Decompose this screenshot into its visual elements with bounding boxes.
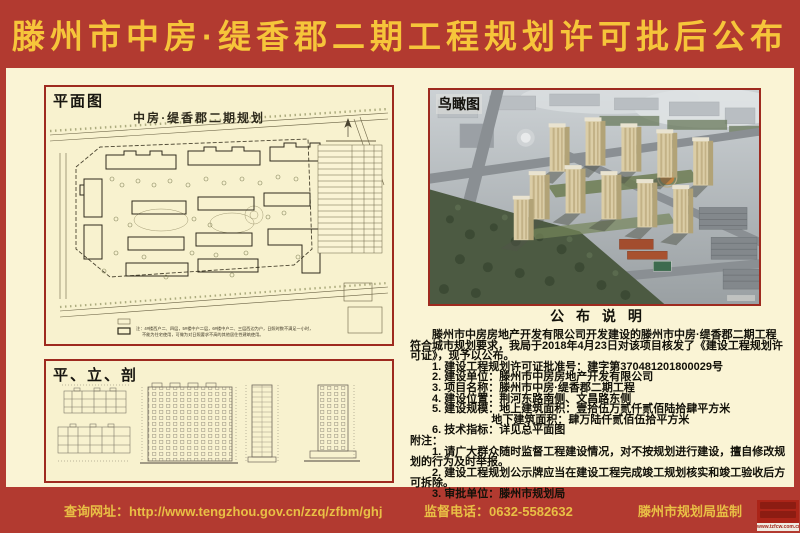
announcement-intro: 滕州市中房房地产开发有限公司开发建设的滕州市中房·缇香郡二期工程符合城市规划要求…: [410, 330, 786, 362]
watermark-glyph-row: [760, 502, 796, 509]
footer-bar: 查询网址：http://www.tengzhou.gov.cn/zzq/zfbm…: [0, 487, 800, 533]
aerial-view-label: 鸟瞰图: [436, 94, 482, 114]
content-area: 平面图 中房·缇香郡二期规划: [6, 68, 794, 487]
announcement-item-3: 3. 项目名称：滕州市中房·缇香郡二期工程: [410, 383, 786, 394]
announcement-note-1: 1. 请广大群众随时监督工程建设情况，对不按规划进行建设，擅自修改规划的行为及时…: [410, 447, 786, 468]
page-title: 滕州市中房·缇香郡二期工程规划许可批后公布: [12, 10, 788, 58]
announcement-note-2: 2. 建设工程规划公示牌应当在建设工程完成竣工规划核实和竣工验收后方可拆除。: [410, 468, 786, 489]
title-banner: 滕州市中房·缇香郡二期工程规划许可批后公布: [0, 0, 800, 68]
aerial-view-image: [430, 90, 759, 304]
announcement-notes-label: 附注：: [410, 436, 786, 447]
site-plan-note-line1: 注：4#楼西户二、四层，5#楼中户二层，6#楼中户二、三层西边为户，日照时数不满…: [136, 325, 313, 332]
footer-producer: 滕州市规划局监制: [638, 501, 742, 520]
announcement-section: 公 布 说 明 滕州市中房房地产开发有限公司开发建设的滕州市中房·缇香郡二期工程…: [410, 306, 786, 500]
watermark-logo: www.tzfcw.com.cn: [757, 500, 799, 531]
footer-website: 查询网址：http://www.tengzhou.gov.cn/zzq/zfbm…: [64, 501, 382, 520]
site-plan-note-line2: 不能为住宅使用，可做为对日照要求不高的其他居住性建筑使用。: [142, 331, 263, 338]
announcement-heading: 公 布 说 明: [410, 306, 786, 326]
footer-phone: 监督电话：0632-5582632: [424, 501, 573, 520]
announcement-poster: 滕州市中房·缇香郡二期工程规划许可批后公布 平面图 中房·缇香郡二期规划: [0, 0, 800, 533]
plan-elevation-section-panel: 平、立、剖: [44, 359, 394, 483]
site-plan-drawing-title: 中房·缇香郡二期规划: [46, 109, 352, 126]
aerial-view-panel: 鸟瞰图: [428, 88, 761, 306]
watermark-url: www.tzfcw.com.cn: [757, 523, 799, 531]
announcement-item-6: 6. 技术指标：详见总平面图: [410, 425, 786, 436]
watermark-glyph-row: [760, 511, 796, 518]
plan-elevation-section-label: 平、立、剖: [53, 364, 138, 385]
site-plan-panel: 平面图 中房·缇香郡二期规划: [44, 85, 394, 346]
site-plan-label: 平面图: [53, 90, 104, 111]
